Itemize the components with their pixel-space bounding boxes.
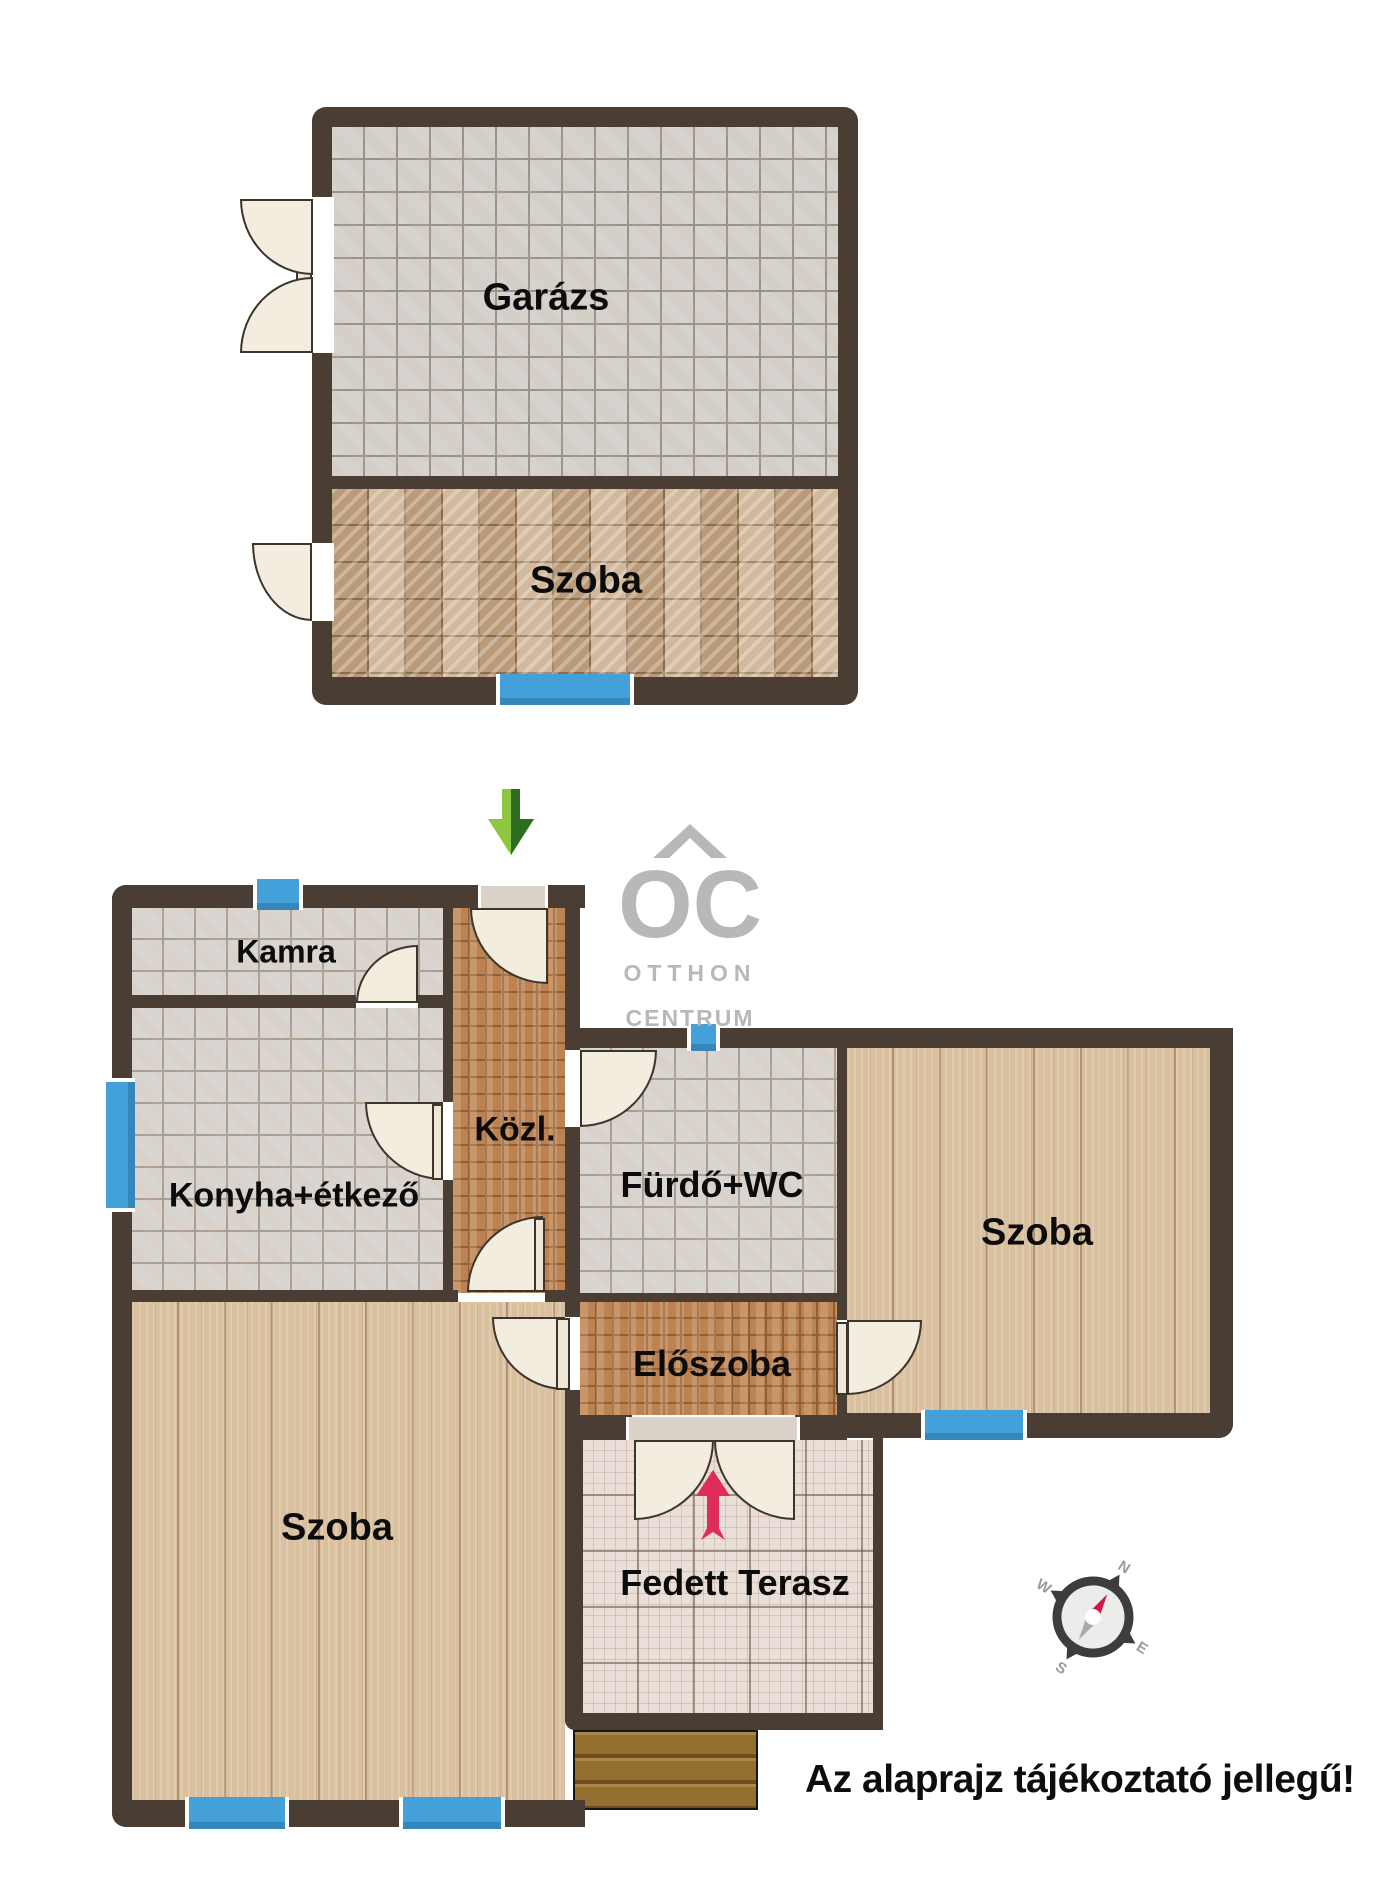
garage-room-door-opening — [310, 543, 334, 621]
kozl-door-leaf — [534, 1218, 545, 1292]
szoba-left-window-1 — [185, 1797, 289, 1829]
wall — [565, 1302, 580, 1317]
wall — [112, 1290, 458, 1302]
konyha-door-leaf — [432, 1104, 443, 1180]
room-label-garage: Garázs — [483, 277, 610, 320]
wall — [565, 885, 580, 1050]
szoba-right-window — [921, 1410, 1027, 1440]
wall — [1210, 1028, 1233, 1438]
wall — [873, 1430, 883, 1730]
compass-e: E — [1133, 1638, 1151, 1658]
wall — [565, 1293, 847, 1302]
wall — [837, 1413, 1233, 1438]
wall — [112, 885, 132, 1827]
terasz-steps — [573, 1730, 758, 1810]
wall — [565, 1390, 580, 1415]
szoba-left-floor — [132, 1302, 565, 1800]
garage-room-window — [496, 674, 634, 705]
room-label-szoba-left: Szoba — [281, 1507, 393, 1550]
wall — [565, 1415, 632, 1440]
wall — [565, 1440, 583, 1730]
watermark-logo: OC — [608, 858, 772, 952]
room-label-terasz: Fedett Terasz — [620, 1562, 849, 1604]
wall — [443, 905, 453, 1102]
terasz-door-threshold — [626, 1417, 800, 1440]
szoba-right-door-leaf — [836, 1322, 848, 1395]
room-label-szoba-right: Szoba — [981, 1212, 1093, 1255]
garage-door-fan-lower — [240, 277, 313, 353]
room-label-eloszoba: Előszoba — [633, 1343, 791, 1385]
disclaimer-text: Az alaprajz tájékoztató jellegű! — [805, 1758, 1355, 1802]
room-label-kamra: Kamra — [236, 934, 336, 971]
wall — [418, 995, 443, 1008]
kamra-window — [253, 879, 303, 910]
room-label-kozl: Közl. — [474, 1111, 555, 1150]
wall — [565, 1713, 883, 1730]
room-label-konyha: Konyha+étkező — [169, 1177, 419, 1216]
floor-plan: Garázs Szoba — [0, 0, 1380, 1900]
wall — [443, 1180, 453, 1293]
compass-n: N — [1115, 1557, 1133, 1577]
room-label-upper-szoba: Szoba — [530, 560, 642, 603]
wall — [565, 1127, 580, 1302]
garage-room-door-fan — [252, 543, 312, 621]
wall — [112, 1800, 585, 1827]
green-arrow-icon — [488, 788, 534, 856]
compass-s: S — [1052, 1658, 1070, 1678]
garage-door-opening — [310, 197, 334, 353]
pink-arrow-icon — [694, 1470, 732, 1542]
wall — [130, 995, 356, 1008]
konyha-window — [106, 1078, 135, 1212]
garage-door-fan-upper — [240, 199, 313, 275]
szoba-left-window-2 — [399, 1797, 505, 1829]
watermark-line2: CENTRUM — [608, 1005, 772, 1032]
room-label-furdo: Fürdő+WC — [621, 1164, 804, 1206]
wall — [795, 1415, 847, 1440]
wall — [837, 1048, 847, 1320]
szoba-left-door-leaf — [556, 1318, 570, 1390]
watermark-line1: OTTHON — [608, 960, 772, 987]
compass-icon: N E S W — [1023, 1547, 1163, 1687]
compass-w: W — [1033, 1576, 1055, 1598]
otthon-centrum-watermark: OC OTTHON CENTRUM — [608, 818, 772, 1032]
entrance-threshold — [478, 886, 548, 908]
